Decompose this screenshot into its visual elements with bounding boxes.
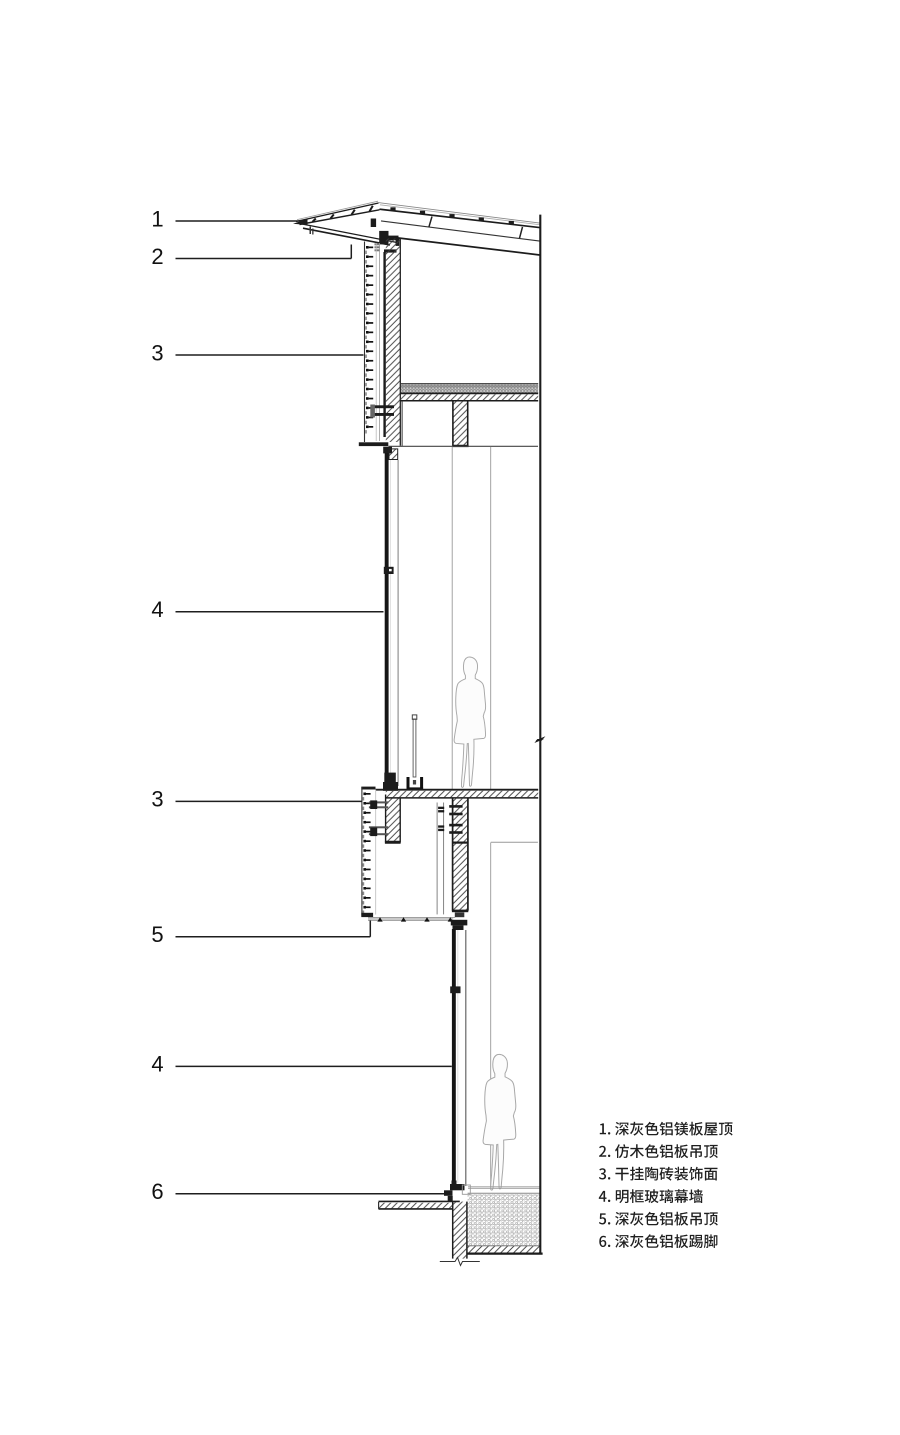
svg-text:6: 6 (151, 1179, 163, 1204)
svg-text:4: 4 (151, 1052, 163, 1077)
svg-text:5: 5 (151, 922, 163, 947)
svg-text:1: 1 (151, 206, 163, 231)
svg-text:3: 3 (151, 787, 163, 812)
svg-text:3: 3 (151, 340, 163, 365)
svg-text:2: 2 (151, 244, 163, 269)
svg-text:4: 4 (151, 597, 163, 622)
